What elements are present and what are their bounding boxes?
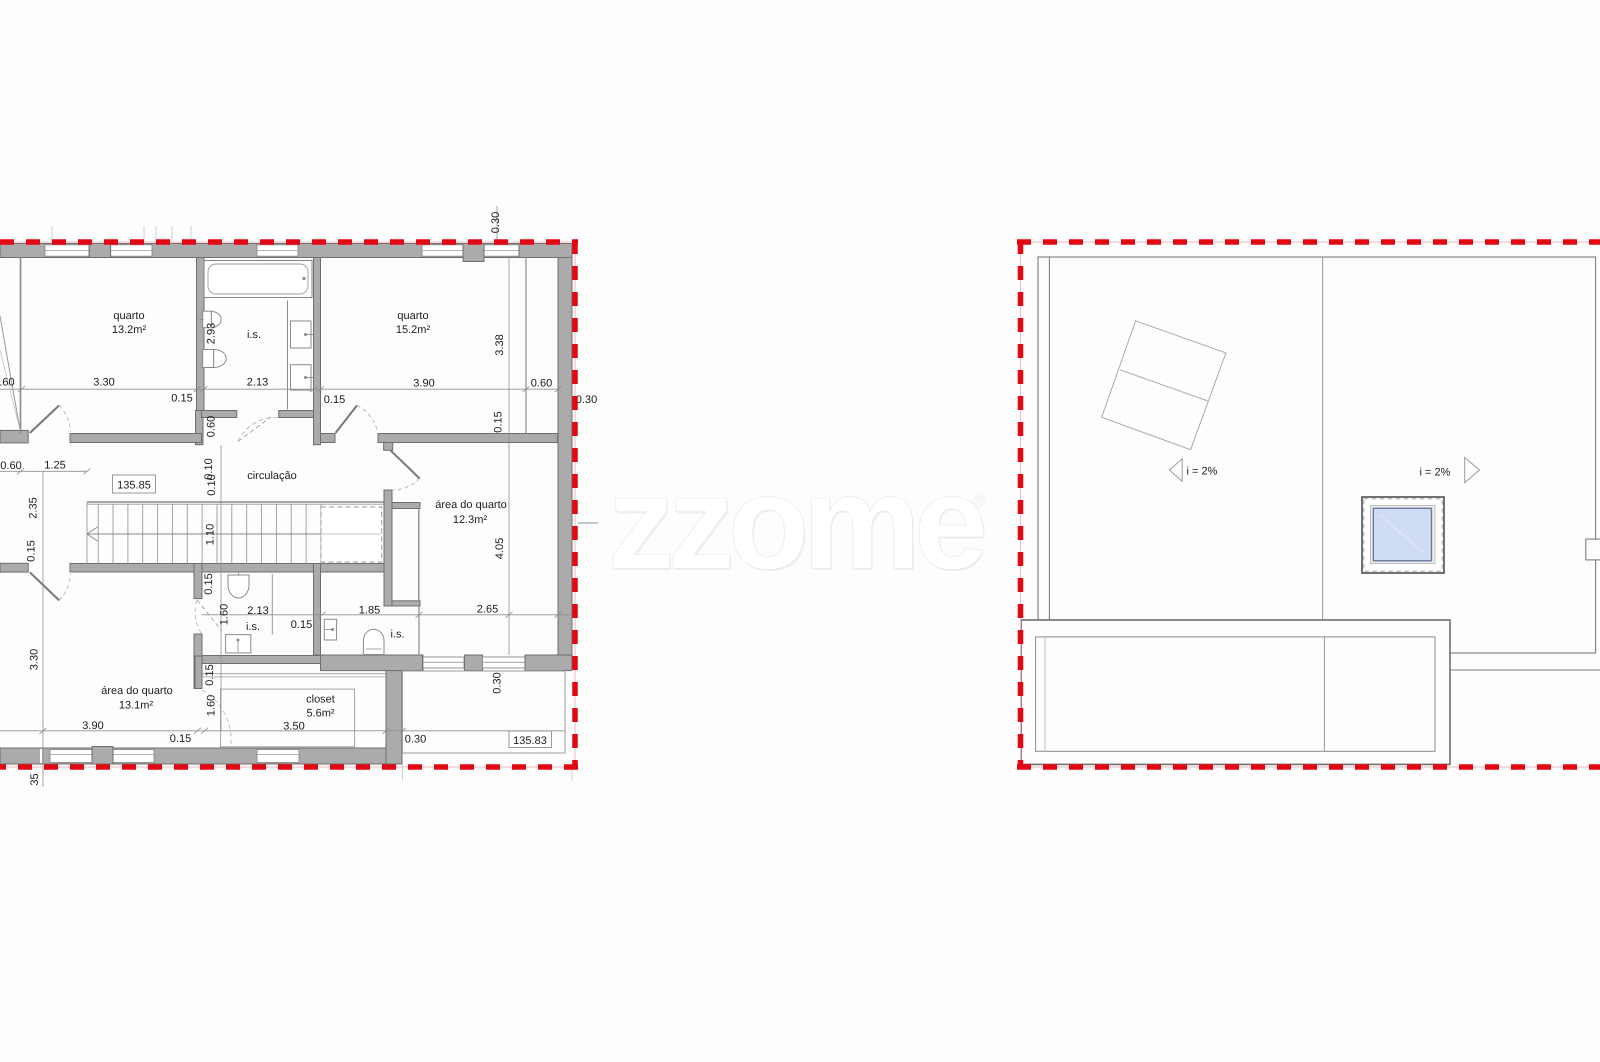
svg-text:0.60: 0.60 — [531, 378, 552, 390]
svg-text:2.13: 2.13 — [247, 605, 268, 617]
svg-text:i = 2%: i = 2% — [1420, 467, 1451, 479]
svg-text:3.90: 3.90 — [413, 378, 434, 390]
svg-text:0.60: 0.60 — [0, 460, 21, 472]
svg-text:0.15: 0.15 — [291, 619, 312, 631]
svg-text:0.15: 0.15 — [324, 394, 345, 406]
svg-text:3.30: 3.30 — [93, 377, 114, 389]
svg-text:i.s.: i.s. — [246, 621, 260, 633]
svg-text:5.6m²: 5.6m² — [306, 708, 334, 720]
svg-text:®: ® — [973, 492, 986, 511]
svg-text:0.10: 0.10 — [206, 474, 218, 495]
svg-text:0.15: 0.15 — [204, 664, 216, 685]
svg-text:13.1m²: 13.1m² — [119, 700, 154, 712]
svg-text:0.30: 0.30 — [492, 672, 504, 693]
svg-text:0.30: 0.30 — [490, 212, 502, 233]
svg-text:área do quarto: área do quarto — [101, 685, 173, 697]
svg-text:2.13: 2.13 — [247, 377, 268, 389]
svg-text:0.60: 0.60 — [206, 416, 218, 437]
svg-text:2.65: 2.65 — [477, 604, 498, 616]
svg-text:2.35: 2.35 — [28, 497, 40, 518]
svg-text:0.15: 0.15 — [26, 540, 38, 561]
svg-text:.60: .60 — [0, 377, 15, 389]
svg-text:0.30: 0.30 — [576, 394, 597, 406]
svg-text:0.30: 0.30 — [405, 734, 426, 746]
svg-text:quarto: quarto — [113, 310, 144, 322]
svg-text:3.30: 3.30 — [29, 649, 41, 670]
svg-text:1.25: 1.25 — [44, 460, 65, 472]
svg-text:35: 35 — [29, 773, 41, 785]
svg-text:135.85: 135.85 — [117, 480, 151, 492]
svg-text:15.2m²: 15.2m² — [396, 324, 431, 336]
svg-text:0.15: 0.15 — [170, 733, 191, 745]
svg-text:3.38: 3.38 — [494, 334, 506, 355]
svg-text:1.60: 1.60 — [206, 695, 218, 716]
svg-text:0.15: 0.15 — [171, 393, 192, 405]
svg-text:13.2m²: 13.2m² — [112, 324, 147, 336]
svg-text:2.93: 2.93 — [206, 323, 218, 344]
svg-text:135.83: 135.83 — [513, 735, 547, 747]
svg-text:zzome: zzome — [608, 449, 983, 596]
svg-text:i.s.: i.s. — [247, 329, 261, 341]
svg-text:0.15: 0.15 — [493, 411, 505, 432]
svg-text:1.85: 1.85 — [359, 605, 380, 617]
svg-text:circulação: circulação — [247, 470, 297, 482]
svg-text:i.s.: i.s. — [390, 629, 404, 641]
svg-text:3.50: 3.50 — [283, 721, 304, 733]
svg-text:3.90: 3.90 — [82, 720, 103, 732]
svg-text:1.10: 1.10 — [205, 524, 217, 545]
svg-text:área do quarto: área do quarto — [435, 499, 507, 511]
svg-text:1.60: 1.60 — [219, 604, 231, 625]
svg-text:quarto: quarto — [397, 310, 428, 322]
svg-text:0.15: 0.15 — [203, 573, 215, 594]
svg-text:12.3m²: 12.3m² — [453, 514, 488, 526]
svg-text:i = 2%: i = 2% — [1187, 466, 1218, 478]
svg-text:closet: closet — [306, 694, 335, 706]
svg-text:4.05: 4.05 — [494, 538, 506, 559]
